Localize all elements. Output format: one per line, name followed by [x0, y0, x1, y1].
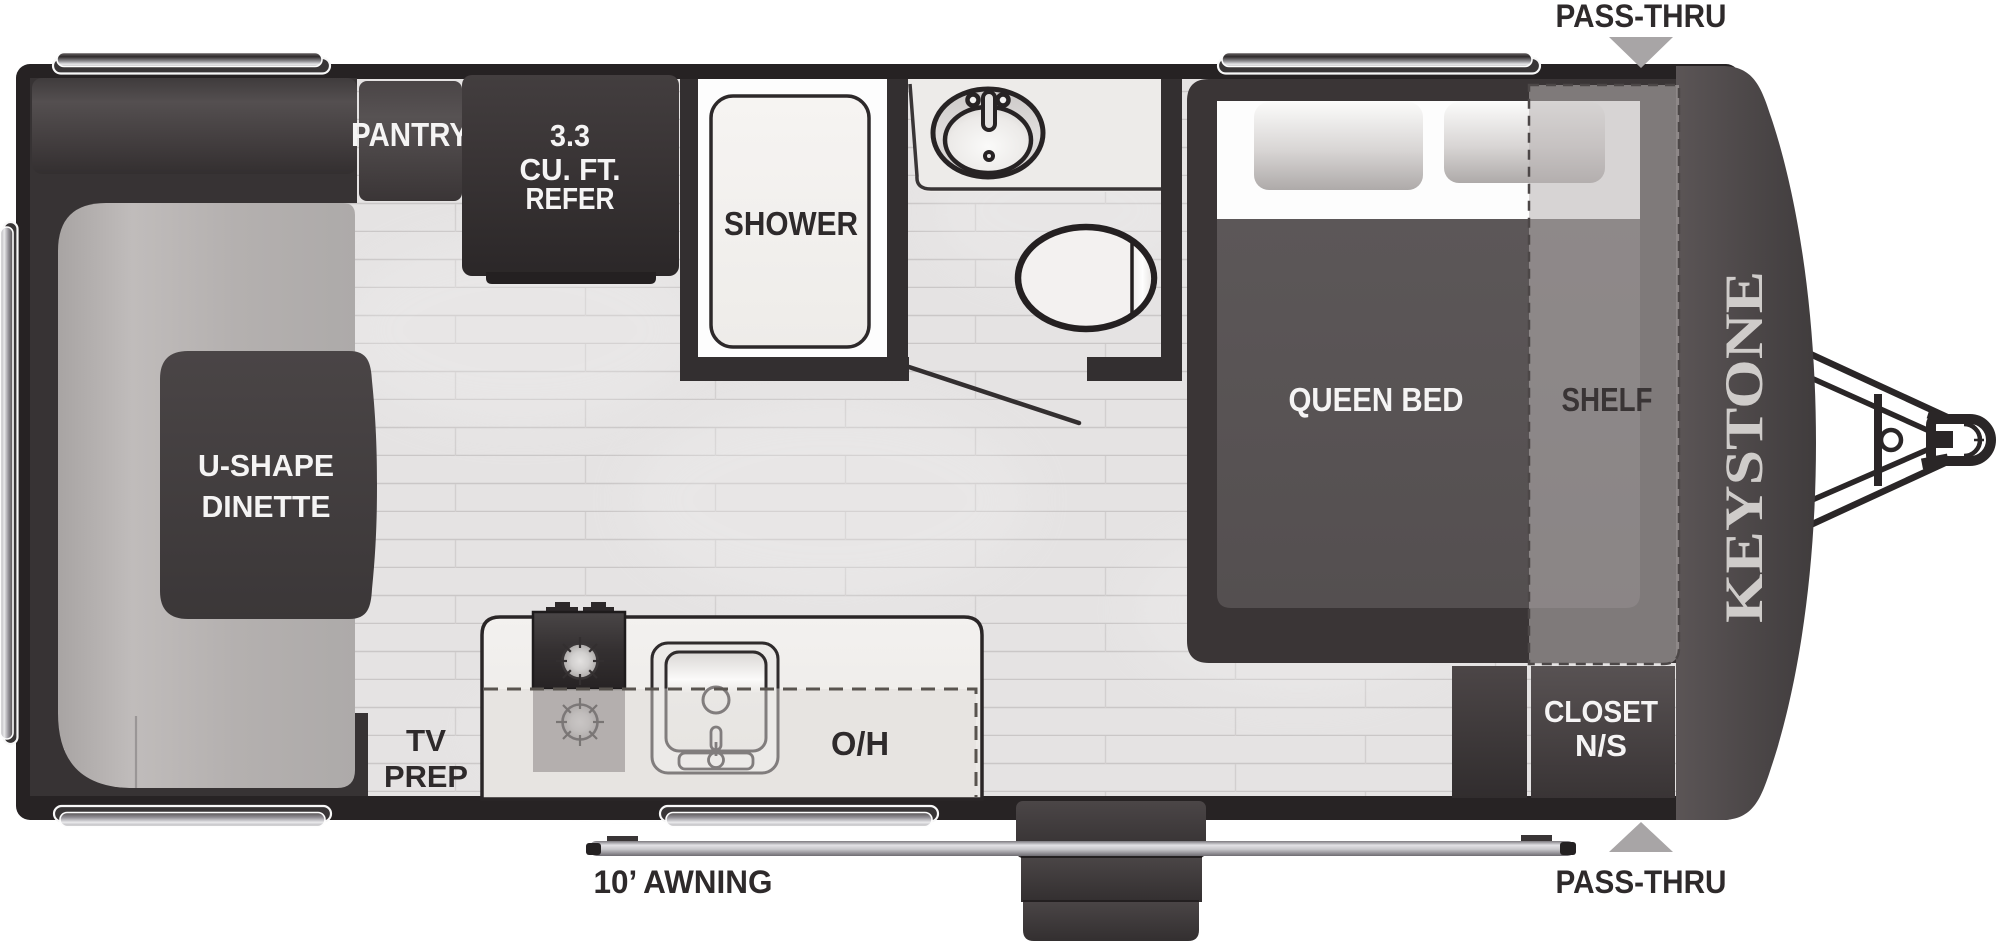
- svg-text:PASS-THRU: PASS-THRU: [1556, 864, 1727, 900]
- svg-text:CLOSET: CLOSET: [1544, 694, 1658, 729]
- svg-text:N/S: N/S: [1575, 728, 1627, 763]
- svg-text:QUEEN BED: QUEEN BED: [1289, 381, 1464, 418]
- svg-text:SHOWER: SHOWER: [724, 205, 858, 242]
- svg-text:KEYSTONE: KEYSTONE: [1714, 271, 1774, 623]
- svg-text:PASS-THRU: PASS-THRU: [1556, 0, 1727, 34]
- svg-text:TV: TV: [406, 723, 446, 758]
- svg-text:SHELF: SHELF: [1562, 381, 1653, 418]
- svg-text:PREP: PREP: [384, 759, 468, 794]
- svg-text:O/H: O/H: [831, 725, 889, 762]
- svg-text:DINETTE: DINETTE: [202, 489, 331, 524]
- svg-text:PANTRY: PANTRY: [351, 116, 469, 153]
- svg-text:10’ AWNING: 10’ AWNING: [594, 864, 773, 900]
- svg-text:REFER: REFER: [526, 181, 615, 216]
- svg-text:3.3: 3.3: [550, 118, 590, 153]
- svg-text:U-SHAPE: U-SHAPE: [198, 448, 334, 483]
